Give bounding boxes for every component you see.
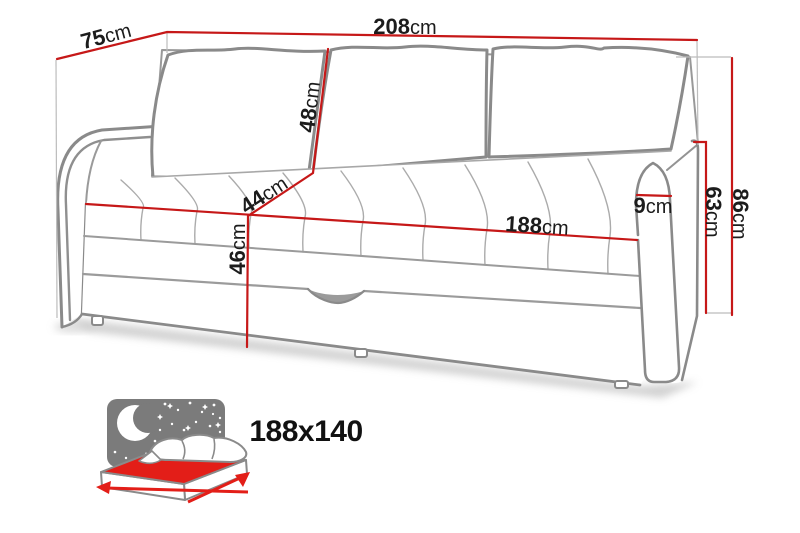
label-seat-height: 46cm xyxy=(227,223,249,274)
night-sleep-icon xyxy=(96,399,250,502)
label-sleeping-area-size: 188x140 xyxy=(249,417,362,447)
label-total-width: 208cm xyxy=(373,16,436,38)
label-total-height: 86cm xyxy=(729,188,751,239)
label-armrest-width: 9cm xyxy=(634,195,673,217)
label-seat-width: 188cm xyxy=(505,213,570,239)
sofa-dimension-diagram: 75cm 208cm 48cm 44cm 46cm 188cm 9cm 63cm… xyxy=(0,0,800,533)
diagram-canvas xyxy=(0,0,800,533)
label-armrest-height: 63cm xyxy=(702,186,724,237)
